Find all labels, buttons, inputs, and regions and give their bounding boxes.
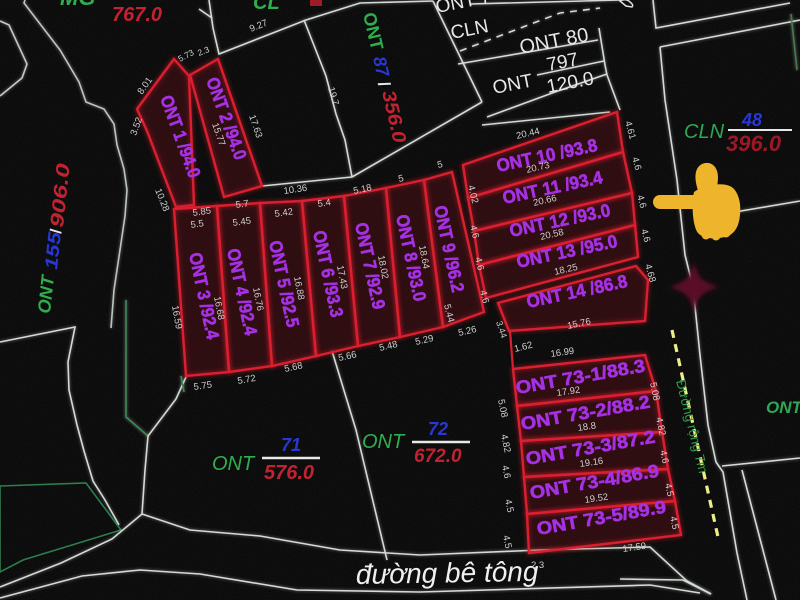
svg-text:396.0: 396.0 bbox=[726, 131, 782, 156]
svg-text:767.0: 767.0 bbox=[112, 4, 162, 26]
svg-text:576.0: 576.0 bbox=[264, 462, 314, 484]
svg-text:71: 71 bbox=[281, 435, 301, 455]
svg-text:5.4: 5.4 bbox=[317, 197, 332, 210]
svg-text:ONT: ONT bbox=[766, 398, 800, 417]
svg-text:5.5: 5.5 bbox=[190, 218, 205, 231]
svg-text:5.7: 5.7 bbox=[235, 198, 250, 211]
svg-text:155: 155 bbox=[42, 230, 65, 270]
svg-text:ONT: ONT bbox=[34, 273, 58, 315]
svg-text:2.3: 2.3 bbox=[531, 560, 544, 571]
svg-text:ONT: ONT bbox=[212, 453, 256, 475]
svg-text:672.0: 672.0 bbox=[414, 446, 462, 467]
svg-text:đường bê tông: đường bê tông bbox=[356, 556, 540, 590]
svg-text:MG: MG bbox=[60, 0, 95, 10]
svg-text:48: 48 bbox=[741, 110, 762, 130]
svg-text:CLN: CLN bbox=[684, 121, 725, 143]
svg-text:72: 72 bbox=[428, 419, 448, 439]
svg-text:ONT: ONT bbox=[362, 431, 406, 453]
svg-text:CL: CL bbox=[253, 0, 280, 14]
